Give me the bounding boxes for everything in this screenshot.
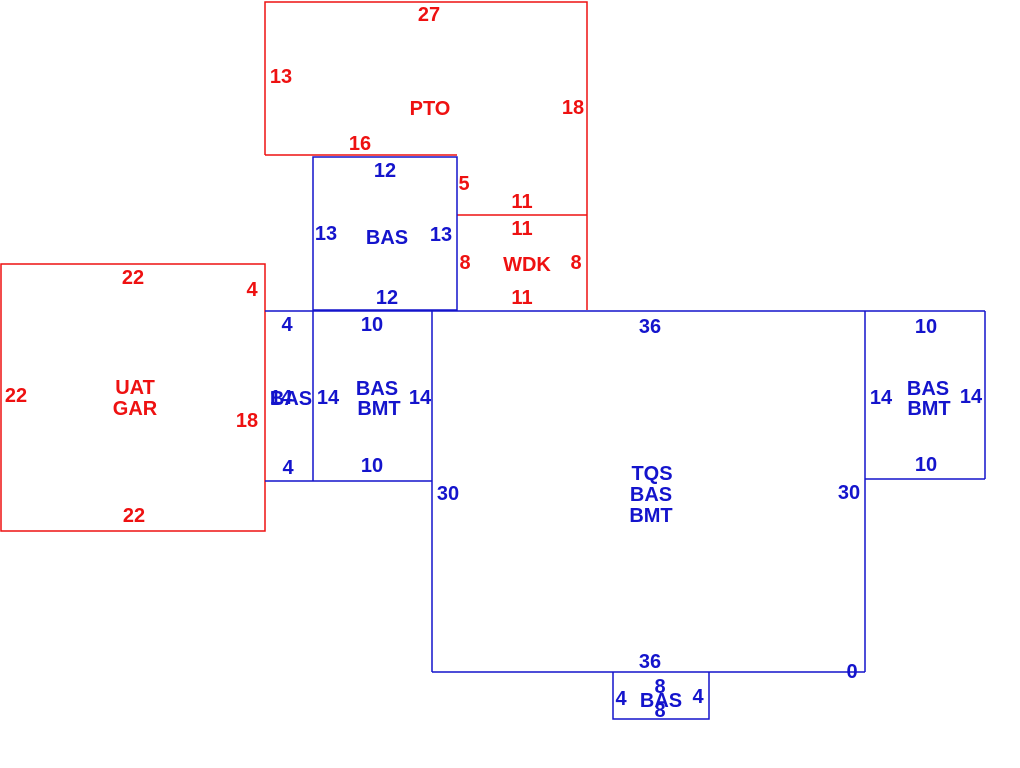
tqs-dim-corner: 0 bbox=[846, 661, 857, 683]
bas-upper-dim-bottom: 12 bbox=[376, 287, 398, 309]
uat-gar-dim-right-upper: 4 bbox=[246, 279, 258, 301]
sketch-canvas: 2713PTO1816511118WDK81122422UATGAR182212… bbox=[0, 0, 1020, 768]
right-bmt-code-line2: BMT bbox=[907, 398, 950, 420]
wdk-code: WDK bbox=[503, 254, 551, 276]
uat-gar-dim-right-lower: 18 bbox=[236, 410, 258, 432]
strip-dim-top: 4 bbox=[281, 314, 293, 336]
left-bmt-dim-left: 14 bbox=[317, 387, 340, 409]
strip-dim-bottom: 4 bbox=[282, 457, 294, 479]
sketch-svg: 2713PTO1816511118WDK81122422UATGAR182212… bbox=[0, 0, 1020, 768]
left-bmt-code-line2: BMT bbox=[357, 398, 400, 420]
bas-upper-dim-left: 13 bbox=[315, 223, 337, 245]
pto-dim-step: 5 bbox=[458, 173, 469, 195]
pto-code: PTO bbox=[410, 98, 451, 120]
uat-gar-code-line2: GAR bbox=[113, 398, 158, 420]
uat-gar-dim-top: 22 bbox=[122, 267, 144, 289]
bottom-bas-dim-right: 4 bbox=[692, 686, 704, 708]
bas-upper-code: BAS bbox=[366, 227, 408, 249]
right-bmt-dim-bottom: 10 bbox=[915, 454, 937, 476]
pto-dim-right: 18 bbox=[562, 97, 584, 119]
left-bmt-dim-bottom: 10 bbox=[361, 455, 383, 477]
tqs-dim-bottom: 36 bbox=[639, 651, 661, 673]
uat-gar-dim-bottom: 22 bbox=[123, 505, 145, 527]
right-bmt-dim-top: 10 bbox=[915, 316, 937, 338]
left-bmt-code-line1: BAS bbox=[356, 378, 398, 400]
right-bmt-dim-left: 14 bbox=[870, 387, 893, 409]
wdk-dim-right: 8 bbox=[570, 252, 581, 274]
tqs-code-line3: BMT bbox=[629, 505, 672, 527]
strip-code: BAS bbox=[270, 388, 312, 410]
uat-gar-dim-left: 22 bbox=[5, 385, 27, 407]
pto-dim-top: 27 bbox=[418, 4, 440, 26]
tqs-code-line1: TQS bbox=[631, 463, 672, 485]
pto-dim-bottom: 16 bbox=[349, 133, 371, 155]
pto-dim-left: 13 bbox=[270, 66, 292, 88]
wdk-dim-left: 8 bbox=[459, 252, 470, 274]
tqs-dim-right: 30 bbox=[838, 482, 860, 504]
right-bmt-dim-right: 14 bbox=[960, 386, 983, 408]
bottom-bas-dim-bottom: 8 bbox=[654, 700, 665, 722]
left-bmt-dim-top: 10 bbox=[361, 314, 383, 336]
tqs-code-line2: BAS bbox=[630, 484, 672, 506]
bas-upper-dim-top: 12 bbox=[374, 160, 396, 182]
left-bmt-dim-right: 14 bbox=[409, 387, 432, 409]
bas-upper-dim-right: 13 bbox=[430, 224, 452, 246]
uat-gar-code-line1: UAT bbox=[115, 377, 155, 399]
wdk-dim-bottom: 11 bbox=[511, 287, 532, 309]
bottom-bas-dim-left: 4 bbox=[615, 688, 627, 710]
pto-dim-bottom-right: 11 bbox=[511, 191, 532, 213]
right-bmt-code-line1: BAS bbox=[907, 378, 949, 400]
tqs-dim-top: 36 bbox=[639, 316, 661, 338]
tqs-dim-left: 30 bbox=[437, 483, 459, 505]
wdk-dim-top: 11 bbox=[511, 218, 532, 240]
